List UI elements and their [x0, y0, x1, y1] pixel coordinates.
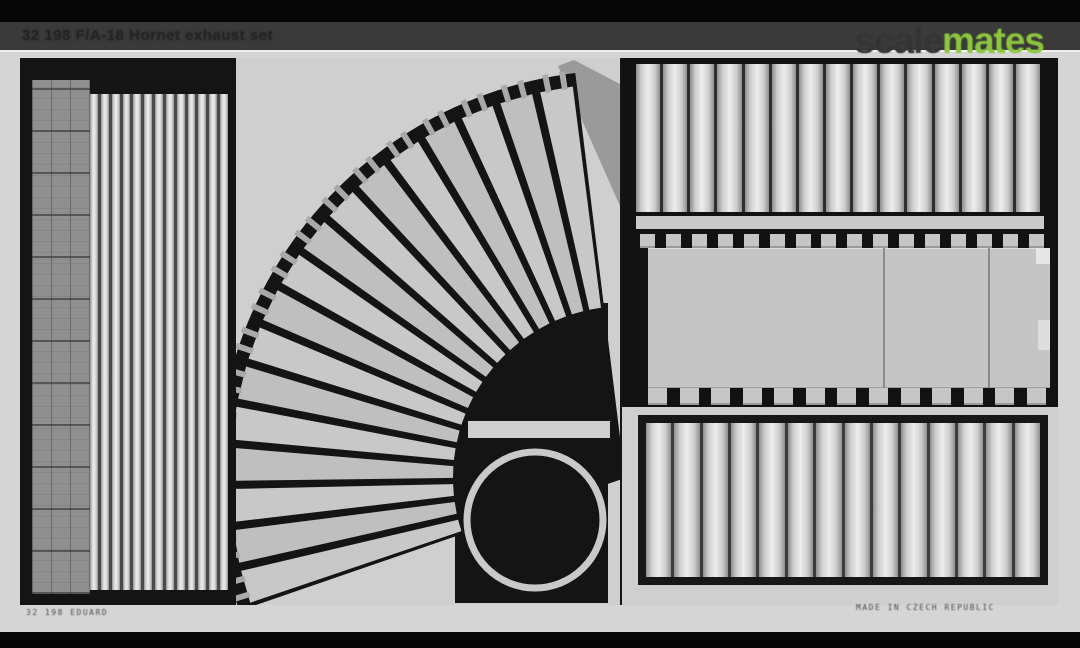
- attachment-tab: [806, 388, 825, 405]
- attachment-tab: [680, 388, 699, 405]
- etched-strip: [155, 94, 163, 590]
- attachment-tab: [743, 388, 762, 405]
- etched-strip: [853, 64, 877, 212]
- attachment-tab: [796, 234, 811, 248]
- attachment-tab: [837, 388, 856, 405]
- louvre-strips: [90, 94, 228, 590]
- attachment-tab: [899, 234, 914, 248]
- nozzle-petal-fan: [236, 58, 620, 605]
- screenshot-stage: 32 198 F/A-18 Hornet exhaust set scalema…: [0, 0, 1080, 648]
- scalemates-logo-scale: scale: [854, 20, 942, 61]
- etched-strip: [198, 94, 206, 590]
- etched-strip: [745, 64, 769, 212]
- etched-strip: [90, 94, 98, 590]
- etched-strip: [873, 423, 898, 577]
- liner-plate: [648, 248, 1050, 388]
- etched-strip: [101, 94, 109, 590]
- etched-strip: [759, 423, 784, 577]
- bottom-right-section: [622, 407, 1058, 605]
- scalemates-logo-mates: mates: [942, 20, 1044, 61]
- etched-strip: [663, 64, 687, 212]
- attachment-tab: [977, 234, 992, 248]
- etched-strip: [930, 423, 955, 577]
- etched-strip: [703, 423, 728, 577]
- etched-strip: [826, 64, 850, 212]
- etched-strip: [112, 94, 120, 590]
- attachment-tab: [744, 234, 759, 248]
- plate-notch: [1038, 320, 1050, 350]
- attachment-tab: [1027, 388, 1046, 405]
- etched-strip: [690, 64, 714, 212]
- etched-strip: [816, 423, 841, 577]
- mounting-bar: [636, 216, 1044, 229]
- top-right-slat-strips: [636, 64, 1040, 212]
- plate-divider: [883, 248, 885, 388]
- attachment-tab: [925, 234, 940, 248]
- attachment-tab: [770, 234, 785, 248]
- attachment-tab: [711, 388, 730, 405]
- etched-strip: [986, 423, 1011, 577]
- etched-strip: [788, 423, 813, 577]
- etched-strip: [220, 94, 228, 590]
- attachment-tab: [951, 234, 966, 248]
- etched-strip: [133, 94, 141, 590]
- etched-strip: [845, 423, 870, 577]
- etched-strip: [907, 64, 931, 212]
- plate-notch: [1036, 248, 1050, 264]
- attachment-tab: [821, 234, 836, 248]
- attachment-tab: [873, 234, 888, 248]
- etched-strip: [1016, 64, 1040, 212]
- etched-strip: [772, 64, 796, 212]
- etched-strip: [962, 64, 986, 212]
- attachment-tab: [964, 388, 983, 405]
- etched-strip: [935, 64, 959, 212]
- attachment-tab: [847, 234, 862, 248]
- etched-strip: [880, 64, 904, 212]
- product-photo: 32 198 EDUARD MADE IN CZECH REPUBLIC: [0, 50, 1080, 632]
- bottom-letterbox-bar: [0, 632, 1080, 648]
- attachment-tab: [995, 388, 1014, 405]
- attachment-tab: [692, 234, 707, 248]
- etched-strip: [958, 423, 983, 577]
- attachment-tab: [666, 234, 681, 248]
- photo-title: 32 198 F/A-18 Hornet exhaust set: [22, 27, 273, 44]
- mesh-texture-strip: [32, 80, 90, 594]
- attachment-tab: [648, 388, 667, 405]
- etched-strip: [123, 94, 131, 590]
- top-right-section: [622, 58, 1058, 407]
- etched-strip: [799, 64, 823, 212]
- scalemates-logo: scalemates: [854, 20, 1044, 62]
- etched-strip: [674, 423, 699, 577]
- panel-frame: [638, 415, 1048, 585]
- attachment-tab: [718, 234, 733, 248]
- etched-strip: [1015, 423, 1040, 577]
- etched-strip: [646, 423, 671, 577]
- nozzle-fan-section: [236, 58, 620, 605]
- etched-strip: [717, 64, 741, 212]
- etched-text-right: MADE IN CZECH REPUBLIC: [856, 603, 995, 612]
- attachment-tab: [1003, 234, 1018, 248]
- attachment-tab: [640, 234, 655, 248]
- attachment-tab: [932, 388, 951, 405]
- attachment-tab: [774, 388, 793, 405]
- plate-divider: [988, 248, 990, 388]
- etched-strip: [209, 94, 217, 590]
- photo-etch-fret: [20, 58, 1058, 605]
- attachment-tab: [869, 388, 888, 405]
- etched-strip: [188, 94, 196, 590]
- etched-strip: [636, 64, 660, 212]
- etched-strip: [144, 94, 152, 590]
- attachment-tab: [901, 388, 920, 405]
- left-louvre-panel: [20, 58, 236, 605]
- tab-row-bottom: [648, 388, 1046, 405]
- etched-strip: [901, 423, 926, 577]
- etched-strip: [177, 94, 185, 590]
- etched-strip: [989, 64, 1013, 212]
- top-letterbox-bar: [0, 0, 1080, 22]
- bottom-right-slat-strips: [646, 423, 1040, 577]
- retainer-bar: [468, 421, 610, 438]
- etched-strip: [166, 94, 174, 590]
- tab-row-top: [640, 234, 1044, 248]
- etched-strip: [731, 423, 756, 577]
- attachment-tab: [1029, 234, 1044, 248]
- etched-text-left: 32 198 EDUARD: [26, 608, 108, 617]
